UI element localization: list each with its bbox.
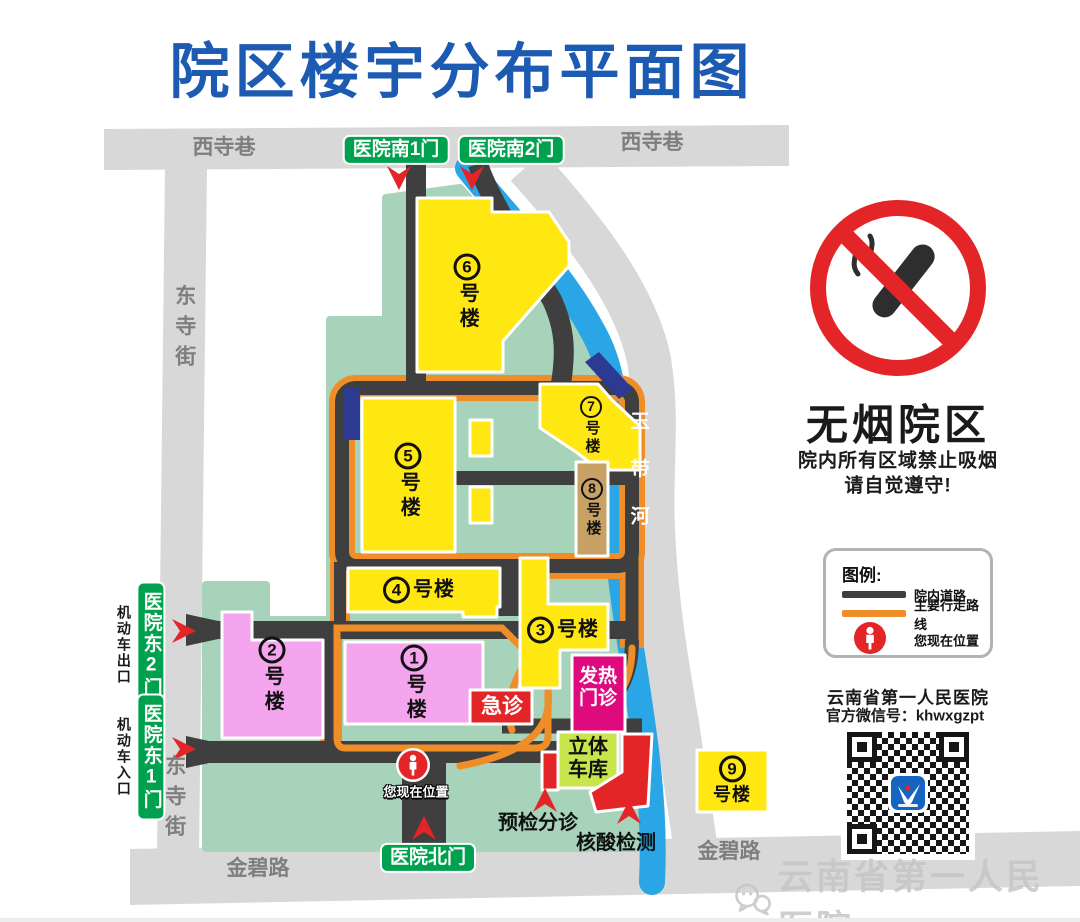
river-label: 玉带河: [627, 411, 648, 554]
legend-route-label: 主要行走路线: [914, 595, 990, 633]
building-3-label: 3 号楼: [527, 617, 599, 644]
building-1-number: 1: [401, 645, 428, 672]
no-smoking-headline: 无烟院区: [806, 401, 990, 448]
street-label-jinbilu-left: 金碧路: [227, 857, 290, 881]
hospital-campus-map-page: 院区楼宇分布平面图 西寺巷 西寺巷 东寺街 东寺街 金碧路 金碧路 玉带河 医院…: [0, 0, 1080, 922]
building-5-number: 5: [395, 443, 422, 470]
gate-note-east1: 机动车入口: [115, 717, 131, 797]
building-2-label: 2 号楼: [259, 637, 286, 716]
watermark-text: 云南省第一人民医院: [778, 849, 1080, 922]
wechat-icon: [733, 880, 772, 920]
building-9-number: 9: [719, 755, 746, 782]
legend-title: 图例:: [842, 561, 882, 586]
building-7-label: 7 号楼: [580, 396, 602, 456]
person-head: [410, 755, 416, 761]
gate-label-south2: 医院南2门: [460, 137, 563, 163]
gate-label-east2: 医院东2门: [138, 584, 163, 707]
street-label-xisixiang-left: 西寺巷: [193, 136, 256, 160]
wechat-account: 官方微信号：khwxgzpt: [826, 709, 984, 726]
building-7-suffix: 号楼: [583, 420, 600, 456]
building-5-annex-a: [470, 420, 492, 456]
building-4-suffix: 号楼: [413, 579, 455, 601]
building-1-label: 1 号楼: [401, 645, 428, 724]
no-smoking-sign: [818, 208, 978, 368]
street-label-dongsijie-bottom: 东寺街: [162, 754, 186, 845]
bottom-edge-strip: [0, 918, 1080, 922]
gate-label-south1: 医院南1门: [345, 137, 448, 163]
legend-road-swatch: [842, 591, 906, 598]
building-3-suffix: 号楼: [557, 619, 599, 641]
gate-label-north: 医院北门: [382, 845, 474, 871]
no-smoking-line1: 院内所有区域禁止吸烟: [798, 450, 998, 471]
building-8-number: 8: [581, 478, 603, 500]
street-label-dongsijie-top: 东寺街: [172, 284, 196, 375]
building-5-label: 5 号楼: [395, 443, 422, 522]
you-are-here-label: 您现在位置: [383, 786, 448, 801]
triage-station: [542, 752, 558, 790]
building-2-suffix: 号楼: [261, 666, 283, 716]
fever-clinic-label: 发热门诊: [575, 666, 621, 710]
legend-position-icon: [853, 621, 887, 655]
wechat-hospital-name: 云南省第一人民医院: [827, 688, 989, 707]
building-9-label: 9 号楼: [713, 755, 751, 804]
nat-test-label: 核酸检测: [576, 832, 656, 854]
building-3-number: 3: [527, 617, 554, 644]
building-1-suffix: 号楼: [403, 674, 425, 724]
gate-note-east2: 机动车出口: [115, 605, 131, 685]
building-9-suffix: 号楼: [713, 784, 751, 804]
street-label-xisixiang-right: 西寺巷: [621, 131, 684, 155]
triage-label: 预检分诊: [498, 812, 578, 834]
building-4-number: 4: [383, 577, 410, 604]
building-8-suffix: 号楼: [584, 502, 601, 538]
legend-route-swatch: [842, 610, 906, 617]
building-6-number: 6: [454, 254, 481, 281]
parking-garage-label: 立体车库: [564, 736, 612, 782]
legend-box: 图例: 院内道路 主要行走路线 您现在位置: [823, 548, 993, 658]
navy-bar-west: [344, 388, 360, 440]
no-smoking-line2: 请自觉遵守!: [844, 475, 951, 496]
building-7-number: 7: [580, 396, 602, 418]
building-8-label: 8 号楼: [581, 478, 603, 538]
building-6-suffix: 号楼: [456, 283, 478, 333]
building-5-annex-b: [470, 487, 492, 523]
watermark: 云南省第一人民医院: [733, 849, 1080, 922]
wechat-qr-code: [841, 726, 975, 860]
legend-position-label: 您现在位置: [914, 631, 979, 650]
qr-center-logo: [888, 773, 928, 813]
emergency-label: 急诊: [481, 695, 523, 719]
building-4-label: 4 号楼: [383, 577, 455, 604]
you-are-here-icon: [396, 748, 430, 782]
building-6-label: 6 号楼: [454, 254, 481, 333]
building-2-number: 2: [259, 637, 286, 664]
gate-label-east1: 医院东1门: [138, 696, 163, 819]
building-5-suffix: 号楼: [397, 472, 419, 522]
page-title: 院区楼宇分布平面图: [170, 38, 755, 105]
